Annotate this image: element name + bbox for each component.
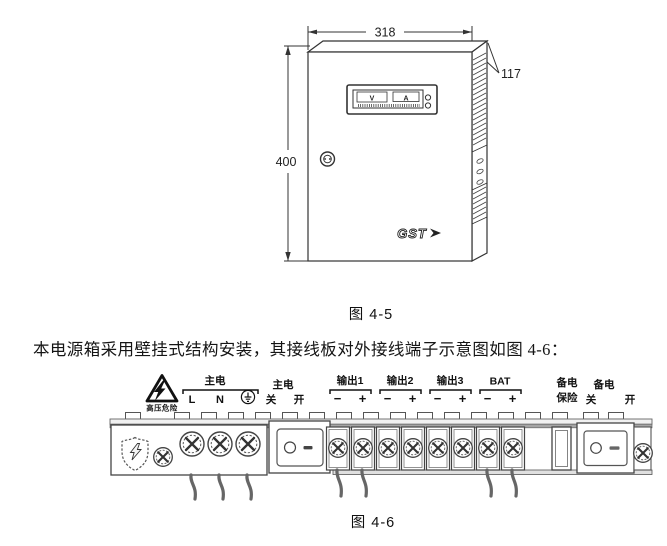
dim-depth-label: 117 <box>501 67 521 81</box>
dim-width-label: 318 <box>375 26 396 40</box>
figure-4-6-terminal-board-drawing: 高压危险 主电 L N 主电 关 开 输出1 − + 输出2 − + <box>0 372 667 506</box>
backup-switch-off-label: 关 <box>586 393 597 406</box>
cabinet-front-door <box>308 52 472 261</box>
output2-title: 输出2 <box>387 374 414 387</box>
mounting-screw <box>154 448 173 467</box>
volt-label: V <box>370 96 375 103</box>
cabinet-top-face <box>308 41 487 52</box>
paragraph: 本电源箱采用壁挂式结构安装，其接线板对外接线端子示意图如图 4-6： <box>33 336 658 360</box>
output3-minus-label: − <box>434 391 442 406</box>
output1-title: 输出1 <box>337 374 364 387</box>
live-terminal <box>180 432 204 456</box>
backup-fuse-label-line2: 保险 <box>556 391 578 404</box>
output-terminal-row <box>327 427 525 496</box>
amp-label: A <box>403 96 408 103</box>
figure-4-6-caption: 图 4-6 <box>351 511 396 532</box>
output2-plus-label: + <box>409 391 417 406</box>
document-page: 318 400 117 <box>0 0 667 546</box>
switch-on-symbol <box>610 446 620 449</box>
backup-switch-title: 备电 <box>593 378 615 391</box>
switch-on-symbol <box>304 446 313 449</box>
mounting-screw <box>634 444 653 463</box>
neutral-terminal <box>208 432 232 456</box>
dimension-height <box>284 46 310 261</box>
live-label: L <box>189 394 196 406</box>
ground-icon <box>241 390 254 403</box>
hazard-label: 高压危险 <box>146 404 178 413</box>
mains-switch-off-label: 关 <box>266 393 277 406</box>
figure-4-5-cabinet-drawing: 318 400 117 <box>0 0 667 300</box>
backup-fuse-label-line1: 备电 <box>556 376 578 389</box>
mains-switch-on-label: 开 <box>294 394 305 406</box>
ground-terminal <box>236 432 260 456</box>
neutral-label: N <box>216 394 224 406</box>
gst-logo-text: GST <box>397 226 427 241</box>
high-voltage-warning-icon <box>147 376 177 402</box>
board-end-section <box>634 427 653 470</box>
output3-plus-label: + <box>459 391 467 406</box>
figure-4-5-caption: 图 4-5 <box>349 303 394 324</box>
output3-title: 输出3 <box>437 374 464 387</box>
mains-wires <box>191 475 251 499</box>
output1-minus-label: − <box>334 391 342 406</box>
rocker <box>277 429 323 466</box>
battery-title: BAT <box>490 376 511 388</box>
battery-plus-label: + <box>509 391 517 406</box>
terminal-labels: 高压危险 主电 L N 主电 关 开 输出1 − + 输出2 − + <box>146 374 636 413</box>
backup-power-switch <box>577 423 634 473</box>
battery-minus-label: − <box>484 391 492 406</box>
mains-group-title: 主电 <box>205 374 226 387</box>
dim-height-label: 400 <box>276 155 297 169</box>
output1-plus-label: + <box>359 391 367 406</box>
output2-minus-label: − <box>384 391 392 406</box>
backup-fuse-holder <box>552 427 571 470</box>
mains-switch-title: 主电 <box>273 378 294 391</box>
backup-switch-on-label: 开 <box>625 394 636 406</box>
mains-terminal-block <box>111 425 267 499</box>
